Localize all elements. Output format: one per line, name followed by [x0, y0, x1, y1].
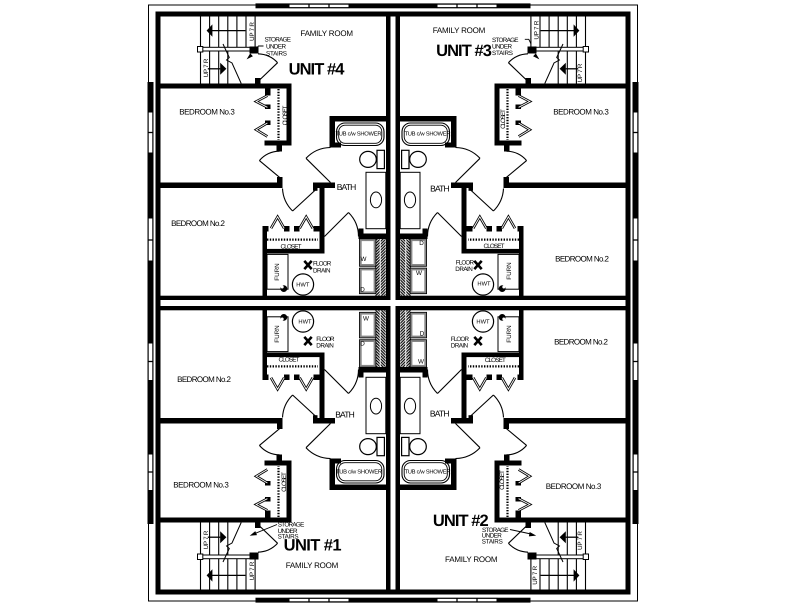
- svg-text:FURN: FURN: [506, 325, 513, 343]
- svg-text:UNIT #3: UNIT #3: [436, 42, 492, 60]
- svg-text:HWT: HWT: [476, 320, 490, 326]
- svg-text:W: W: [361, 256, 367, 263]
- svg-text:BEDROOM No.2: BEDROOM No.2: [171, 219, 225, 228]
- svg-text:BEDROOM No.3: BEDROOM No.3: [553, 107, 609, 116]
- svg-text:DRAIN: DRAIN: [313, 268, 331, 275]
- svg-text:UP 7 R: UP 7 R: [249, 561, 256, 580]
- svg-text:UP 7 R: UP 7 R: [203, 58, 210, 77]
- svg-text:W: W: [418, 359, 424, 366]
- svg-text:UP 7 R: UP 7 R: [249, 22, 256, 41]
- svg-text:BEDROOM No.2: BEDROOM No.2: [554, 337, 608, 346]
- svg-text:CLOSET: CLOSET: [282, 106, 289, 126]
- svg-text:STAIRS: STAIRS: [492, 50, 513, 57]
- svg-text:BATH: BATH: [430, 408, 450, 418]
- svg-text:UP 7 R: UP 7 R: [577, 63, 584, 82]
- svg-text:W: W: [363, 316, 369, 323]
- svg-text:STAIRS: STAIRS: [266, 50, 287, 57]
- svg-text:UNDER: UNDER: [266, 43, 286, 50]
- svg-text:STORAGE: STORAGE: [265, 36, 292, 43]
- svg-text:TUB c/w SHOWER: TUB c/w SHOWER: [405, 131, 451, 138]
- svg-text:D: D: [360, 286, 365, 293]
- svg-text:FURN: FURN: [274, 325, 281, 343]
- svg-text:FAMILY ROOM: FAMILY ROOM: [286, 561, 339, 570]
- svg-text:D: D: [360, 340, 365, 347]
- svg-text:BATH: BATH: [337, 182, 357, 192]
- svg-text:UNIT #2: UNIT #2: [433, 512, 489, 530]
- svg-text:DRAIN: DRAIN: [451, 343, 469, 350]
- svg-text:D: D: [420, 331, 425, 338]
- svg-text:CLOSET: CLOSET: [499, 470, 506, 490]
- svg-text:UP 7 R: UP 7 R: [532, 565, 539, 584]
- svg-text:STAIRS: STAIRS: [278, 533, 299, 540]
- svg-text:BEDROOM No.3: BEDROOM No.3: [179, 107, 235, 116]
- svg-text:UNIT #4: UNIT #4: [289, 61, 346, 79]
- svg-text:D: D: [419, 240, 424, 247]
- svg-text:TUB c/w SHOWER: TUB c/w SHOWER: [336, 469, 382, 476]
- svg-text:FURN: FURN: [506, 262, 513, 280]
- svg-text:HWT: HWT: [477, 282, 491, 288]
- svg-text:FLOOR: FLOOR: [313, 261, 332, 268]
- svg-text:CLOSET: CLOSET: [281, 243, 302, 250]
- svg-text:TUB c/w SHOWER: TUB c/w SHOWER: [336, 131, 382, 138]
- svg-text:CLOSET: CLOSET: [281, 472, 288, 492]
- svg-text:TUB c/w SHOWER: TUB c/w SHOWER: [405, 469, 451, 476]
- svg-text:DRAIN: DRAIN: [316, 343, 334, 350]
- svg-text:UP 7 R: UP 7 R: [533, 20, 540, 39]
- svg-text:CLOSET: CLOSET: [500, 109, 507, 129]
- svg-text:W: W: [416, 270, 422, 277]
- svg-text:HWT: HWT: [298, 320, 312, 326]
- svg-text:FURN: FURN: [274, 263, 281, 281]
- svg-text:CLOSET: CLOSET: [279, 356, 300, 363]
- svg-text:BATH: BATH: [335, 410, 355, 420]
- svg-text:FAMILY ROOM: FAMILY ROOM: [445, 555, 498, 564]
- svg-text:BEDROOM No.2: BEDROOM No.2: [177, 375, 231, 384]
- svg-text:UP 7 R: UP 7 R: [203, 530, 210, 549]
- svg-text:BEDROOM No.3: BEDROOM No.3: [173, 480, 229, 489]
- svg-text:CLOSET: CLOSET: [485, 357, 506, 364]
- svg-text:UP 7 R: UP 7 R: [577, 531, 584, 550]
- svg-text:BEDROOM No.2: BEDROOM No.2: [555, 255, 609, 264]
- svg-text:HWT: HWT: [296, 283, 310, 289]
- svg-text:DRAIN: DRAIN: [455, 266, 473, 273]
- svg-text:BEDROOM No.3: BEDROOM No.3: [546, 482, 602, 491]
- svg-text:FAMILY ROOM: FAMILY ROOM: [433, 26, 486, 35]
- svg-text:BATH: BATH: [430, 184, 450, 194]
- svg-text:STAIRS: STAIRS: [482, 538, 503, 545]
- svg-text:CLOSET: CLOSET: [484, 243, 505, 250]
- svg-text:FAMILY ROOM: FAMILY ROOM: [300, 29, 353, 38]
